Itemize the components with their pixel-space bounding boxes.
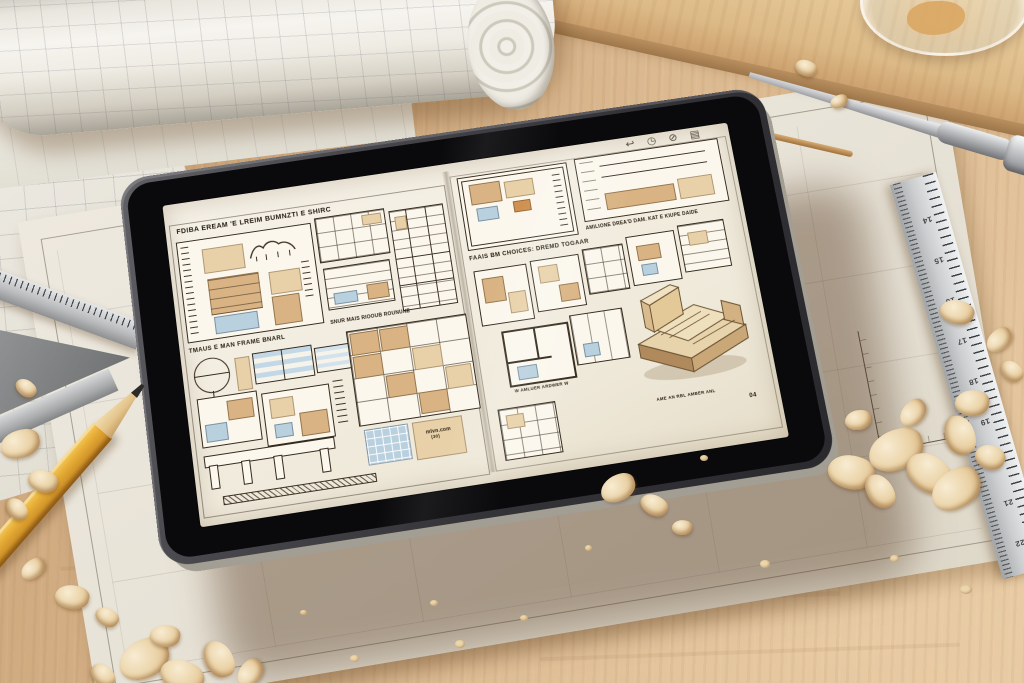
blue-grid-panel: [364, 423, 413, 465]
plan-room: [274, 422, 294, 439]
clock-icon[interactable]: ◷: [646, 134, 657, 147]
ruler-number: 19: [979, 415, 991, 426]
room-plan: [473, 264, 535, 327]
plan-room: [687, 230, 709, 246]
page-number: 04: [749, 392, 758, 399]
floor-plan-thick-walls: [501, 322, 577, 388]
plan-block: [677, 174, 716, 199]
wood-grain-streak: [540, 643, 960, 662]
plywood-piece: [412, 344, 444, 371]
plywood-piece: [349, 330, 381, 356]
plan-line: [405, 210, 421, 308]
plan-room: [482, 276, 508, 304]
plan-block: [366, 281, 390, 299]
wood-crumb: [760, 560, 770, 568]
plywood-piece: [445, 363, 474, 389]
dimension-ticks: [332, 379, 348, 424]
wood-crumb: [700, 455, 708, 461]
plan-line: [424, 207, 440, 305]
elevation-drawing: [323, 259, 396, 311]
plans-left-page: FDIBA EREAM 'E LREIM BUMNZTI E SHIRC: [169, 185, 491, 519]
dimension-ticks: [301, 260, 314, 299]
dimension-ticks: [180, 247, 198, 336]
wood-shaving: [17, 555, 49, 584]
framed-room-plan: [456, 162, 578, 251]
plan-line: [396, 251, 449, 260]
floor-plan: [569, 308, 631, 366]
plan-room: [205, 422, 229, 443]
wood-crumb: [455, 640, 465, 648]
room-plan: [677, 219, 732, 273]
plywood-cutting-layout: [346, 313, 481, 426]
plan-room: [517, 364, 539, 381]
plywood-piece: [379, 325, 411, 351]
plan-room: [299, 409, 330, 437]
plan-room: [226, 397, 254, 421]
plan-block: [202, 243, 246, 274]
blueprint-roll-end: [460, 0, 563, 115]
plan-wall: [533, 329, 540, 358]
panel-grid-drawing: [314, 208, 391, 263]
contrast-icon[interactable]: ⊘: [667, 131, 678, 144]
plan-block: [604, 183, 676, 210]
ruler-number: 21: [1002, 496, 1014, 507]
plan-block: [214, 311, 260, 335]
plan-block: [394, 215, 408, 230]
wood-crumb: [430, 600, 438, 606]
label-column: [579, 161, 602, 215]
plan-room: [513, 199, 532, 213]
plan-room: [538, 264, 560, 284]
wood-crumb: [960, 585, 972, 594]
plan-line: [281, 350, 286, 379]
clamp-detail: [234, 356, 253, 391]
workbench-scene: 14 15 16 17 18 19 20 21 22 ↩ ◷ ⊘ ▤ FDIBA…: [0, 0, 1024, 683]
wood-crumb: [350, 655, 359, 662]
blue-cabinet-drawing: [252, 345, 316, 385]
plywood-piece: [418, 388, 450, 414]
wood-crumb: [890, 555, 899, 562]
plan-room: [636, 243, 662, 262]
plan-line: [400, 277, 453, 286]
wood-crumb: [520, 615, 528, 621]
ruler-number: 18: [968, 375, 980, 386]
wood-shaving: [997, 356, 1024, 386]
plan-room: [269, 396, 296, 419]
room-plan: [530, 254, 588, 312]
floor-plan: [197, 390, 263, 448]
plan-block: [268, 267, 302, 294]
dimension-ticks: [552, 174, 569, 227]
plan-room: [559, 282, 581, 302]
ruler-number: 17: [956, 335, 968, 346]
plan-block: [361, 212, 382, 225]
plan-wall: [508, 356, 552, 365]
plan-block: [207, 272, 263, 316]
iso-caption: AME AN RBL AMBER ANL: [656, 389, 716, 403]
library-icon[interactable]: ▤: [689, 128, 701, 141]
plan-room: [641, 262, 659, 276]
floor-plan: [497, 401, 563, 461]
ruler-number: 22: [1014, 536, 1024, 547]
title-block: mlvn.com (30): [412, 415, 468, 460]
plan-room: [583, 342, 601, 358]
tall-elevation-drawing: [388, 203, 458, 311]
plan-room: [503, 178, 535, 199]
plans-right-page: AMILIONE DREA'D DAM. KAT E KIUPE DAIDE F…: [449, 136, 783, 472]
wood-crumb: [585, 545, 592, 551]
sketch-figure: [244, 231, 300, 265]
plan-block: [333, 290, 358, 305]
plan-room: [508, 290, 529, 314]
isometric-furniture-drawing: [618, 268, 765, 393]
framed-elevation-panel: [574, 138, 730, 222]
ruler-number: 15: [933, 254, 945, 265]
plan-room: [468, 181, 502, 206]
compass-detail: [192, 355, 232, 395]
plan-room: [476, 206, 499, 222]
wood-crumb: [300, 610, 307, 615]
jar-contents: [907, 1, 965, 35]
cutting-diagram-panel: [176, 223, 325, 344]
plywood-piece: [352, 353, 384, 380]
plywood-piece: [385, 371, 417, 398]
ruler-number: 14: [921, 213, 933, 224]
share-icon[interactable]: ↩: [625, 137, 636, 150]
plan-room: [505, 413, 525, 429]
plan-block: [272, 293, 303, 326]
